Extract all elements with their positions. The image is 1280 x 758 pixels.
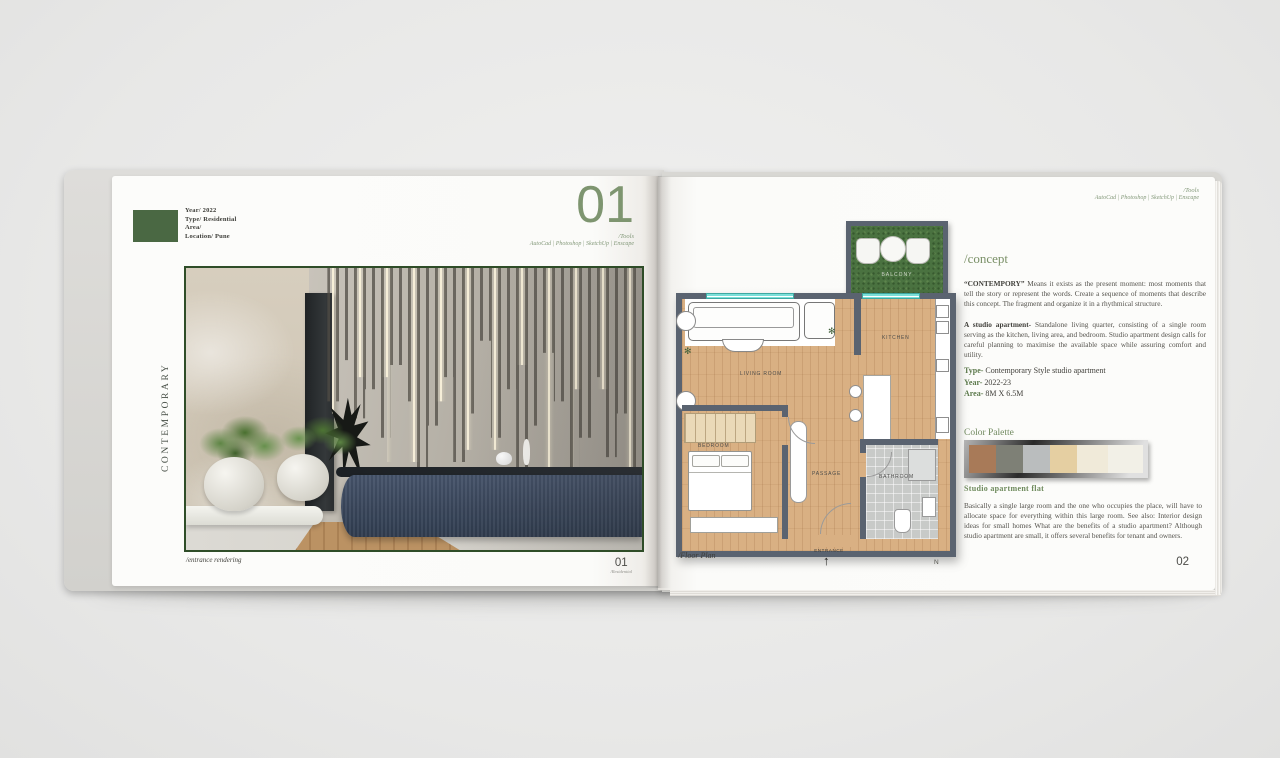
balcony-table xyxy=(880,236,906,262)
floor-plan: BALCONY ❋ ✻ ✻ xyxy=(676,221,952,567)
tools-label: /Tools xyxy=(1095,187,1199,195)
right-page-number: 02 xyxy=(1176,556,1189,568)
appliance-icon xyxy=(936,321,949,334)
left-page-number: 01 /Residential xyxy=(611,557,633,574)
project-meta: Year/ 2022 Type/ Residential Area/ Locat… xyxy=(185,207,237,241)
spec-type-value: Contemporary Style studio apartment xyxy=(983,366,1105,375)
tools-list: AutoCad | Photoshop | SketchUp | Enscape xyxy=(530,241,634,248)
meta-year: Year/ 2022 xyxy=(185,207,237,216)
left-page-number-sub: /Residential xyxy=(611,569,633,574)
palette-swatch-5 xyxy=(1077,445,1108,473)
portfolio-spread: Year/ 2022 Type/ Residential Area/ Locat… xyxy=(0,0,1280,758)
toilet-icon xyxy=(894,509,911,533)
tools-block-left: /Tools AutoCad | Photoshop | SketchUp | … xyxy=(530,233,634,248)
spec-type-label: Type- xyxy=(964,366,983,375)
balcony-chair xyxy=(906,238,930,264)
concept-paragraph-1-lead: “CONTEMPORY” xyxy=(964,279,1025,288)
entrance-opening xyxy=(815,535,853,547)
project-specs: Type- Contemporary Style studio apartmen… xyxy=(964,365,1106,400)
wall xyxy=(682,405,786,411)
stool-icon xyxy=(849,409,862,422)
chapter-number: 01 xyxy=(576,180,634,230)
wall-light-icon xyxy=(676,311,696,331)
render-shading-overlay xyxy=(186,268,642,550)
right-page: /Tools AutoCad | Photoshop | SketchUp | … xyxy=(658,177,1215,590)
palette-swatch-4 xyxy=(1050,445,1077,473)
color-palette xyxy=(964,440,1148,478)
wardrobe-icon xyxy=(684,413,756,443)
concept-paragraph-2: A studio apartment- Standalone living qu… xyxy=(964,320,1206,359)
image-caption: /entrance rendering xyxy=(186,556,242,564)
door-swing-arc xyxy=(820,503,851,534)
spec-area-value: 8M X 6.5M xyxy=(983,389,1023,398)
window-icon xyxy=(862,293,920,299)
tools-block-right: /Tools AutoCad | Photoshop | SketchUp | … xyxy=(1095,187,1199,202)
sofa-seat-line xyxy=(693,307,794,328)
pillow-icon xyxy=(721,455,749,467)
meta-area: Area/ xyxy=(185,224,237,233)
palette-swatch-3 xyxy=(1023,445,1050,473)
left-page-number-value: 01 xyxy=(611,557,633,569)
coffee-table-icon xyxy=(722,339,764,352)
floor-plan-caption: /Floor Plan xyxy=(678,551,716,560)
wall xyxy=(782,405,788,417)
room-label-bedroom: BEDROOM xyxy=(698,443,729,449)
left-page: Year/ 2022 Type/ Residential Area/ Locat… xyxy=(112,176,658,586)
wall xyxy=(782,445,788,539)
tools-list: AutoCad | Photoshop | SketchUp | Enscape xyxy=(1095,195,1199,202)
meta-location: Location/ Pune xyxy=(185,233,237,242)
room-label-bathroom: BATHROOM xyxy=(879,474,914,480)
kitchen-wall-stub xyxy=(854,299,861,355)
project-color-block xyxy=(133,210,178,242)
room-label-kitchen: KITCHEN xyxy=(882,335,910,341)
vertical-project-title: CONTEMPORARY xyxy=(161,356,171,472)
window-icon xyxy=(706,293,794,299)
apartment-unit: ✻ ✻ xyxy=(676,293,956,557)
tools-label: /Tools xyxy=(530,233,634,241)
meta-type: Type/ Residential xyxy=(185,216,237,225)
color-palette-heading: Color Palette xyxy=(964,428,1014,438)
palette-swatch-1 xyxy=(969,445,996,473)
balcony-chair xyxy=(856,238,880,264)
room-label-passage: PASSAGE xyxy=(812,471,841,477)
stool-icon xyxy=(849,385,862,398)
room-label-balcony: BALCONY xyxy=(851,272,943,278)
entrance-arrow-icon: ↑ xyxy=(823,553,830,568)
palette-swatch-6 xyxy=(1108,445,1143,473)
studio-flat-body: Basically a single large room and the on… xyxy=(964,501,1202,540)
spec-area: Area- 8M X 6.5M xyxy=(964,388,1106,400)
palette-swatch-2 xyxy=(996,445,1023,473)
spec-area-label: Area- xyxy=(964,389,983,398)
sofa-icon xyxy=(688,302,800,341)
pillow-icon xyxy=(692,455,720,467)
entrance-rendering-image xyxy=(184,266,644,552)
spec-year-value: 2022-23 xyxy=(982,378,1011,387)
kitchen-island xyxy=(863,375,891,441)
plant-icon: ✻ xyxy=(828,327,836,336)
bed-icon xyxy=(688,451,752,511)
spec-year-label: Year- xyxy=(964,378,982,387)
north-indicator: N xyxy=(934,559,939,566)
plant-icon: ✻ xyxy=(684,347,692,356)
concept-heading: /concept xyxy=(964,251,1008,267)
fridge-icon xyxy=(936,417,949,433)
window-seat-icon xyxy=(690,517,778,533)
sink-icon xyxy=(922,497,936,517)
concept-paragraph-2-lead: A studio apartment- xyxy=(964,320,1031,329)
appliance-icon xyxy=(936,305,949,318)
appliance-icon xyxy=(936,359,949,372)
room-label-living: LIVING ROOM xyxy=(740,371,782,377)
spec-year: Year- 2022-23 xyxy=(964,377,1106,389)
studio-flat-heading: Studio apartment flat xyxy=(964,484,1044,493)
spec-type: Type- Contemporary Style studio apartmen… xyxy=(964,365,1106,377)
blanket-line xyxy=(689,472,751,473)
concept-paragraph-1: “CONTEMPORY” Means it exists as the pres… xyxy=(964,279,1206,308)
